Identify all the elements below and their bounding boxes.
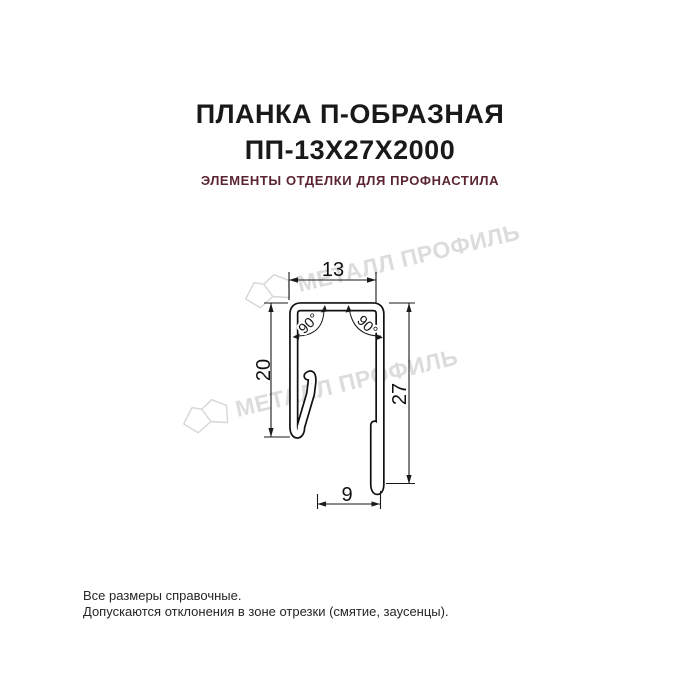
footer-note-line2: Допускаются отклонения в зоне отрезки (с…	[83, 604, 449, 620]
watermark-lower: МЕТАЛЛ ПРОФИЛЬ	[180, 342, 461, 436]
angle-left-label: 90°	[296, 311, 323, 338]
dim-left-height-label: 20	[253, 359, 275, 381]
product-drawing-page: ПЛАНКА П-ОБРАЗНАЯ ПП-13Х27Х2000 ЭЛЕМЕНТЫ…	[0, 0, 700, 700]
footer-notes: Все размеры справочные. Допускаются откл…	[83, 588, 449, 620]
watermark-text: МЕТАЛЛ ПРОФИЛЬ	[233, 344, 461, 422]
watermark-text: МЕТАЛЛ ПРОФИЛЬ	[295, 219, 523, 297]
dim-right-height: 27	[386, 303, 415, 484]
dim-right-height-label: 27	[389, 383, 411, 405]
metall-profil-logo-icon	[180, 397, 231, 436]
dim-top-width-label: 13	[322, 259, 344, 281]
watermark-upper: МЕТАЛЛ ПРОФИЛЬ	[242, 217, 523, 311]
footer-note-line1: Все размеры справочные.	[83, 588, 449, 604]
dim-bottom-width-label: 9	[341, 484, 352, 506]
metall-profil-logo-icon	[242, 272, 293, 311]
